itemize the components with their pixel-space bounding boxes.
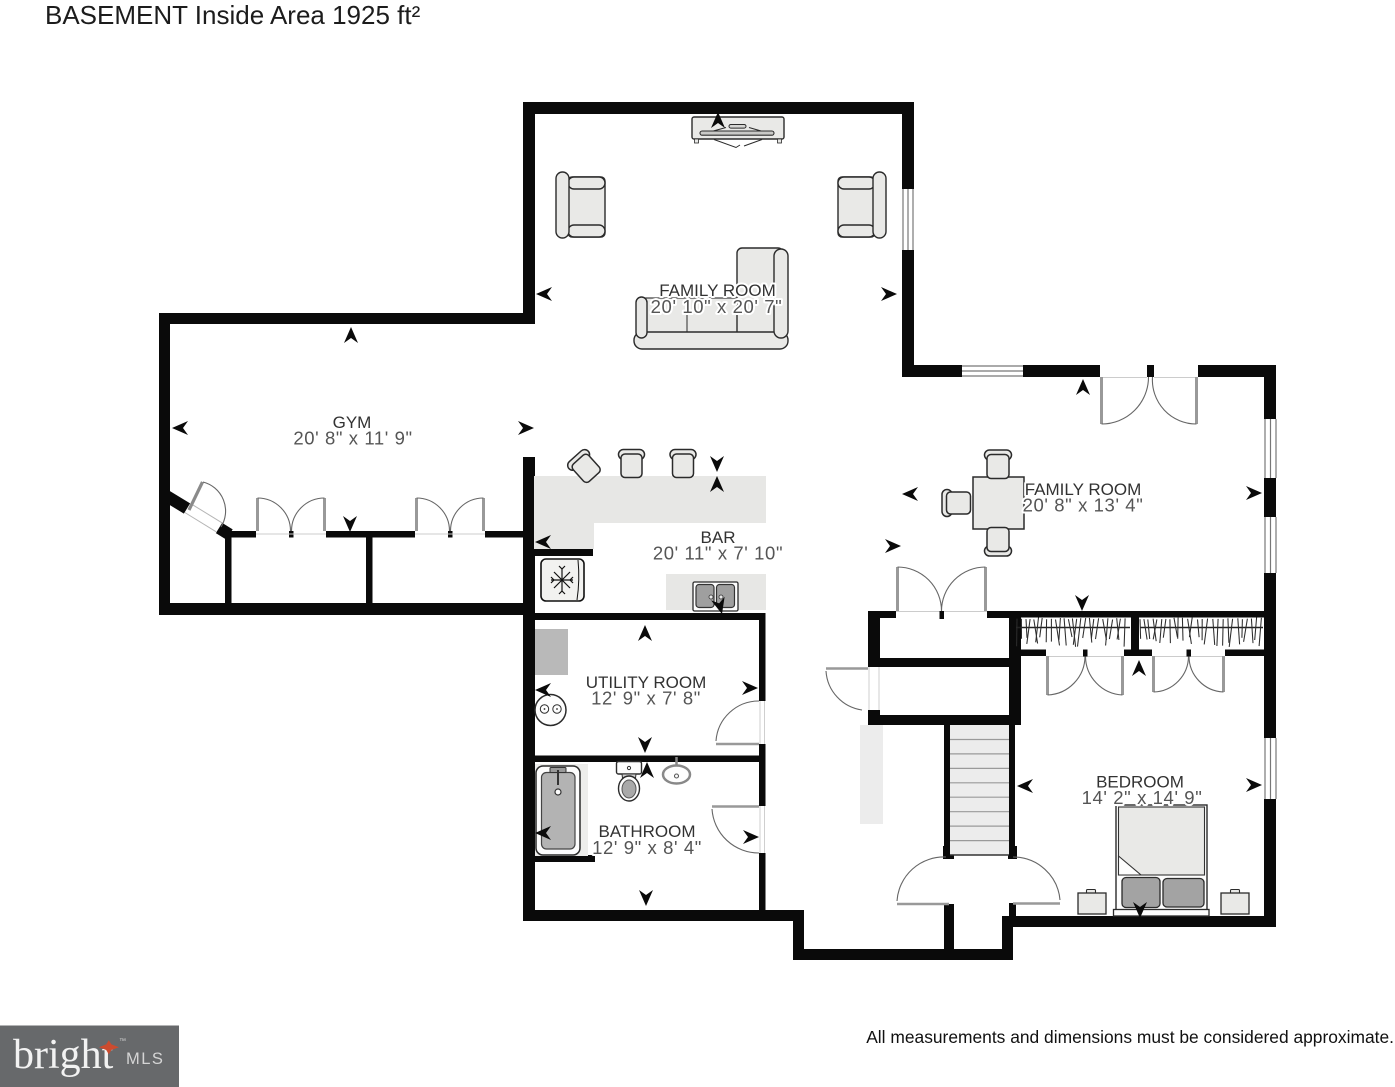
svg-text:bright: bright — [13, 1032, 114, 1078]
svg-text:20' 11" x 7' 10": 20' 11" x 7' 10" — [653, 543, 783, 564]
svg-text:20' 8" x 11' 9": 20' 8" x 11' 9" — [293, 428, 412, 449]
svg-text:12' 9" x 7' 8": 12' 9" x 7' 8" — [591, 688, 701, 709]
svg-text:12' 9" x 8' 4": 12' 9" x 8' 4" — [592, 837, 702, 858]
svg-text:MLS: MLS — [126, 1050, 164, 1068]
svg-text:20' 10" x 20' 7": 20' 10" x 20' 7" — [651, 296, 783, 317]
svg-text:14' 2" x 14' 9": 14' 2" x 14' 9" — [1082, 787, 1203, 808]
svg-text:™: ™ — [119, 1038, 126, 1045]
svg-text:BASEMENT Inside Area 1925 ft²: BASEMENT Inside Area 1925 ft² — [45, 0, 421, 30]
svg-text:20' 8" x 13' 4": 20' 8" x 13' 4" — [1023, 495, 1144, 516]
svg-text:All measurements and dimension: All measurements and dimensions must be … — [866, 1027, 1394, 1047]
